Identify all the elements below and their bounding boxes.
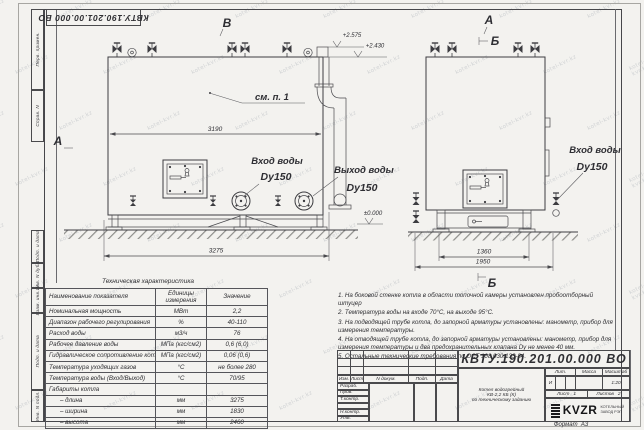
outlet-flange-icon [295,192,313,210]
scale-header: Масштаб [602,368,630,376]
inlet-label: Вход воды [251,156,302,167]
side-valve-icon [413,211,420,223]
spec-row: Гидравлическое сопротивление котлаМПа (к… [46,350,268,361]
spec-header-units: Единицыизмерения [156,289,207,306]
spec-row: Рабочее давление водыМПа (кгс/см2)0,6 (6… [46,339,268,350]
valve-icon [283,43,292,57]
elevation-2575: +2.575 [343,33,362,39]
rev-header-izm: Изм. [337,375,351,383]
side-flange-icon [553,210,560,217]
elevation-2430: +2.430 [366,44,385,50]
sig-col-podp [414,383,436,422]
boiler-body-side [108,57,323,215]
sig-row-utv: Утв. [337,416,369,423]
sheets-cell: Листов2 [587,390,630,398]
revision-grid [337,350,458,375]
sheet-cell: Лист1 [545,390,588,398]
valve-icon [431,43,440,57]
doc-number-cell: КВТУ.190.201.00.000 ВО [458,350,630,368]
support-frame [433,210,535,232]
rev-header-podp: Подп. [408,375,436,383]
ground-hatch [408,233,578,241]
description-line: по техническому заданию [472,398,531,403]
outlet-dn-label: Dy150 [347,182,378,194]
right-view: 1360 1950 А Б Б Вход воды Dy150 [408,13,621,290]
elevation-zero: ±0.000 [364,211,383,217]
drain-valve-icon [210,196,216,206]
spec-row: – длинамм3275 [46,395,268,406]
section-marker-a-left: А [53,134,63,148]
inlet-dn-label: Dy150 [261,171,292,183]
dim-3190: 3190 [208,126,223,133]
view-marker-a: А [484,13,494,27]
spec-row: Температура воды (Вход/Выход)°С70/95 [46,373,268,384]
valve-icon [514,43,523,57]
title-block: Изм. Лист N докум. Подп. Дата Разраб. Пр… [337,350,630,422]
left-view: 3190 3275 +2.575 +2.430 ±0.000 см. п. 1 … [53,16,394,261]
ground-hatch [64,231,358,240]
side-fitting [545,118,550,127]
inlet-dn-label-right: Dy150 [577,161,608,173]
doc-number: КВТУ.190.201.00.000 ВО [461,352,626,366]
kvzr-logo-subtext: КОТЕЛЬНЫЙ ЗАВОД РЭП [600,405,624,414]
support-skid [106,215,327,230]
leader-dot [209,92,211,94]
spec-table: Наименование показателя Единицыизмерения… [45,288,268,429]
sig-col-data [436,383,458,422]
spec-row: Номинальная мощностьМВт2,2 [46,306,268,317]
kvzr-logo-icon [551,403,560,418]
spec-header-name: Наименование показателя [46,289,156,306]
note-line: 2. Температура воды на входе 70°С, на вы… [338,309,618,317]
spec-header-value: Значение [207,289,268,306]
dim-3275: 3275 [209,248,224,255]
lit-header: Лит. [545,368,576,376]
spec-row: – высотамм2460 [46,417,268,428]
spec-row: Диапазон рабочего регулирования%40-110 [46,317,268,328]
side-fitting [545,150,549,176]
rev-header-ndokum: N докум. [363,375,409,383]
note-line: 1. На боковой стенке котла в области топ… [338,292,618,308]
drain-valve-icon [275,196,281,206]
drain-valve-icon [130,196,136,206]
valve-icon [241,43,250,57]
spec-table-title: Техническая характеристика [45,278,251,285]
massa-value-cell [575,376,603,390]
massa-header: Масса [575,368,603,376]
section-marker-b-top: Б [491,34,500,48]
note-line: 3. На подводящей трубе котла, до запорно… [338,319,618,335]
boiler-body-front [426,57,545,210]
dim-1950: 1950 [476,259,491,266]
side-valve-icon [413,193,420,205]
spec-row: Температура уходящих газов°Сне более 280 [46,361,268,372]
spec-row: Расход водым3/ч76 [46,328,268,339]
furnace-door-front [463,170,507,208]
valve-icon [531,43,540,57]
furnace-door-side [163,160,207,198]
section-marker-b-bottom: Б [488,276,497,290]
dim-1360: 1360 [477,249,492,256]
format-note: Формат А3 [515,422,627,428]
description-cell: Котел водогрейный КВ-2,2 КБ (К) по техни… [458,368,545,422]
sig-col-fio [369,383,414,422]
kvzr-logo-text: KVZR [563,403,598,417]
spec-row: Габариты котла [46,384,268,395]
view-marker-v: В [223,16,232,30]
outlet-label: Выход воды [334,165,394,176]
spec-row: – ширинамм1830 [46,406,268,417]
inlet-label-right: Вход воды [569,145,620,156]
valve-icon [228,43,237,57]
logo-cell: KVZR КОТЕЛЬНЫЙ ЗАВОД РЭП [545,398,630,422]
rev-header-list: Лист [350,375,364,383]
valve-icon [148,43,157,57]
drawing-sheet: kotel-kvr.kzkotel-kvr.kzkotel-kvr.kzkote… [0,0,644,430]
valve-icon [448,43,457,57]
valve-icon [113,43,122,57]
see-note-label: см. п. 1 [255,92,289,103]
scale-value-cell: 1:20 [602,376,630,390]
side-valve-icon [553,193,560,205]
rev-header-data: Дата [435,375,458,383]
inlet-flange-icon [232,192,250,210]
